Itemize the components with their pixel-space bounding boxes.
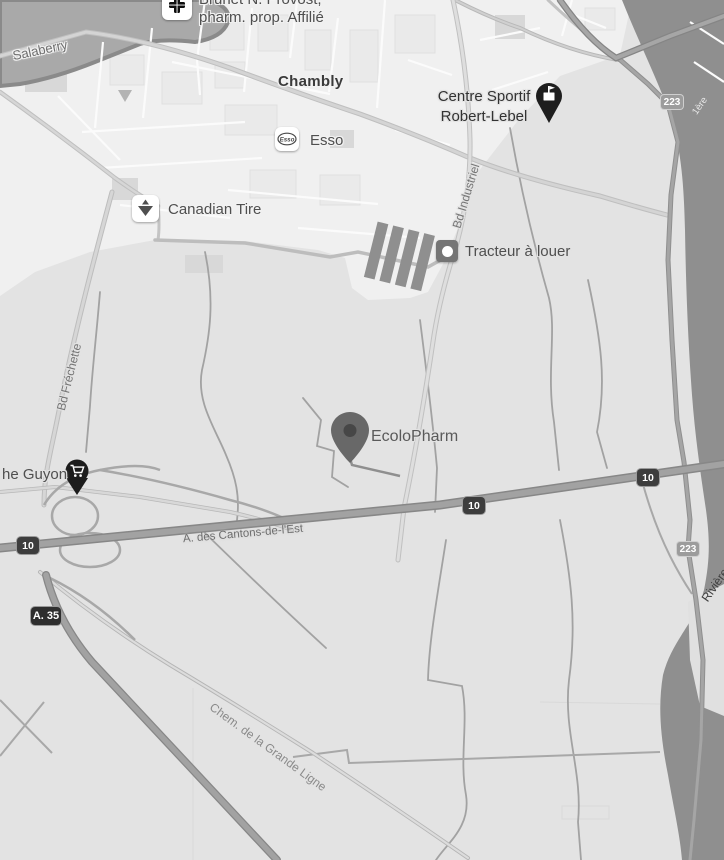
canadian-tire-triangle-icon bbox=[132, 195, 159, 222]
shield-autoroute-10: 10 bbox=[17, 537, 39, 554]
shield-route-223: 223 bbox=[677, 542, 699, 556]
shield-route-223: 223 bbox=[661, 95, 683, 109]
canadian-tire-badge[interactable] bbox=[132, 195, 159, 222]
esso-station-badge[interactable]: Esso bbox=[275, 127, 299, 151]
esso-oval-logo-icon: Esso bbox=[275, 127, 299, 151]
shield-223-label: 223 bbox=[664, 97, 681, 108]
shield-autoroute-10: 10 bbox=[637, 469, 659, 486]
shield-10-label: 10 bbox=[642, 472, 654, 484]
shield-autoroute-10: 10 bbox=[463, 497, 485, 514]
map-canvas[interactable] bbox=[0, 0, 724, 860]
shield-a35-label: A. 35 bbox=[33, 610, 59, 622]
shield-10-label: 10 bbox=[22, 540, 34, 552]
shield-10-label: 10 bbox=[468, 500, 480, 512]
pharmacy-cross-icon bbox=[162, 0, 192, 20]
tracteur-badge[interactable] bbox=[436, 240, 458, 262]
shield-223-label: 223 bbox=[680, 544, 697, 555]
brunet-pharmacy-badge[interactable] bbox=[162, 0, 192, 20]
pin-inner-dot bbox=[344, 424, 357, 437]
shield-autoroute-35: A. 35 bbox=[31, 607, 61, 625]
map-viewport[interactable]: Esso 10 10 10 A. 35 223 223 Brunet N. Pr… bbox=[0, 0, 724, 860]
svg-text:Esso: Esso bbox=[280, 136, 295, 143]
dot-icon bbox=[442, 246, 453, 257]
